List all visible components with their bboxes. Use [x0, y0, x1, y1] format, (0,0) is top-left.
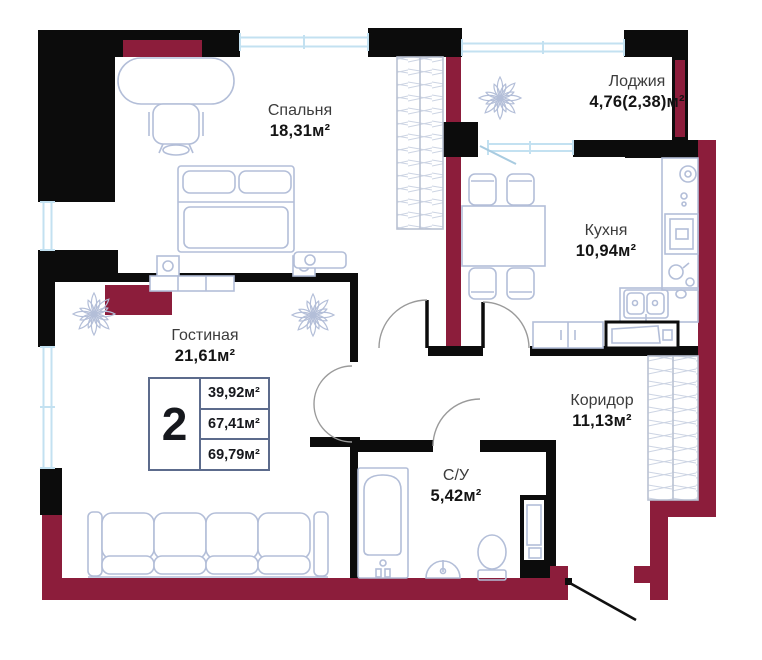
floor-plan: Спальня 18,31м² Лоджия 4,76(2,38)м² Кухн… — [0, 0, 762, 660]
kitchen-niche-icon — [606, 322, 678, 348]
room-area: 5,42м² — [430, 486, 481, 506]
room-area: 10,94м² — [576, 241, 636, 261]
apartment-stats: 2 39,92м² 67,41м² 69,79м² — [148, 377, 270, 471]
room-area: 4,76(2,38)м² — [589, 92, 684, 112]
loggia-bottom-window-icon — [488, 140, 573, 155]
room-name: Коридор — [570, 392, 633, 409]
dining-table-icon — [462, 206, 545, 266]
cooktop-icon — [680, 166, 696, 206]
room-name: Кухня — [585, 222, 628, 239]
stats-areas: 39,92м² 67,41м² 69,79м² — [201, 379, 268, 469]
stove-icon — [665, 214, 698, 254]
kitchen-door-icon — [483, 302, 529, 348]
bed-icon — [178, 166, 294, 252]
kitchen-double-sink-icon — [624, 290, 668, 324]
bedroom-door-icon — [379, 300, 427, 348]
furniture — [73, 57, 698, 580]
room-label-loggia: Лоджия 4,76(2,38)м² — [589, 72, 684, 112]
desk-icon — [118, 58, 234, 104]
room-area: 18,31м² — [268, 121, 332, 141]
room-label-bathroom: С/У 5,42м² — [430, 466, 481, 506]
stats-area-2: 67,41м² — [201, 410, 268, 441]
room-name: Спальня — [268, 102, 332, 119]
bedroom-wardrobe-icon — [397, 57, 443, 229]
kitchen-cabinet-icon — [533, 322, 603, 348]
room-name: Гостиная — [171, 327, 238, 344]
room-label-kitchen: Кухня 10,94м² — [576, 221, 636, 261]
room-label-bedroom: Спальня 18,31м² — [268, 101, 332, 141]
loggia-top-window-icon — [462, 39, 624, 56]
room-label-corridor: Коридор 11,13м² — [570, 391, 633, 431]
stats-area-1: 39,92м² — [201, 379, 268, 410]
room-name: С/У — [443, 467, 469, 484]
bathroom-niche-mirror-icon — [524, 500, 544, 560]
kitchen-deco-icon — [669, 263, 694, 298]
bedroom-window-icon — [240, 33, 368, 51]
room-area: 21,61м² — [171, 346, 238, 366]
stats-area-3: 69,79м² — [201, 440, 268, 469]
bathroom-door-icon — [433, 399, 480, 446]
office-chair-icon — [149, 104, 203, 155]
room-area: 11,13м² — [570, 411, 633, 431]
room-label-living: Гостиная 21,61м² — [171, 326, 238, 366]
toilet-icon — [478, 535, 506, 580]
entrance-door-icon — [565, 578, 636, 620]
rooms-count: 2 — [150, 379, 201, 469]
living-room-door-icon — [314, 366, 352, 442]
sofa-icon — [88, 512, 328, 577]
corridor-wardrobe-icon — [648, 356, 698, 500]
bedroom-left-window-icon — [40, 202, 55, 250]
bathtub-icon — [358, 468, 408, 578]
room-name: Лоджия — [609, 73, 666, 90]
loggia-door-icon — [480, 146, 516, 164]
washbasin-icon — [426, 560, 460, 578]
living-window-icon — [40, 347, 55, 468]
